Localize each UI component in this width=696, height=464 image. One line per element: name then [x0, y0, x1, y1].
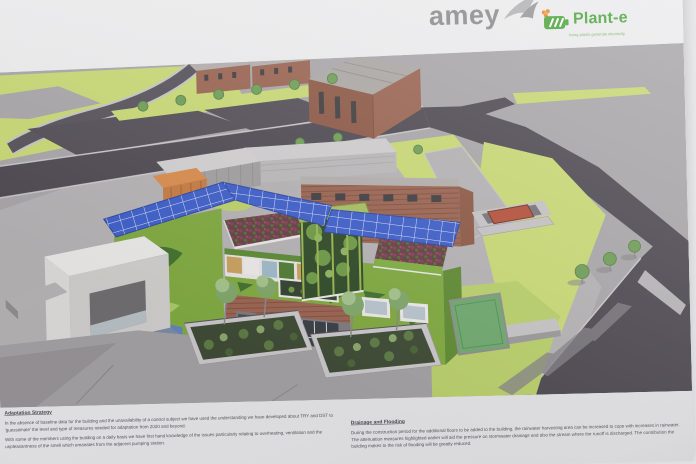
- photo-of-poster: amey Plant-e living plan: [0, 0, 696, 464]
- amey-logo-text: amey: [429, 1, 501, 30]
- poster-page: amey Plant-e living plan: [0, 0, 694, 464]
- plante-battery-icon: [539, 8, 570, 33]
- site-plan-rendering: [0, 43, 692, 408]
- caption-right-column: Drainage and Flooding During the constru…: [351, 411, 688, 464]
- plante-logo-text: Plant-e: [573, 9, 628, 28]
- amey-logo: amey: [429, 0, 541, 30]
- caption-paragraph: During the construction period for the a…: [351, 422, 687, 450]
- attenuation-pond: [450, 293, 509, 354]
- plante-logo: Plant-e living plants generate electrici…: [539, 5, 670, 42]
- amey-swoosh-icon: [501, 0, 540, 23]
- caption-left-column: Adaptation Strategy In the absence of ba…: [4, 401, 349, 464]
